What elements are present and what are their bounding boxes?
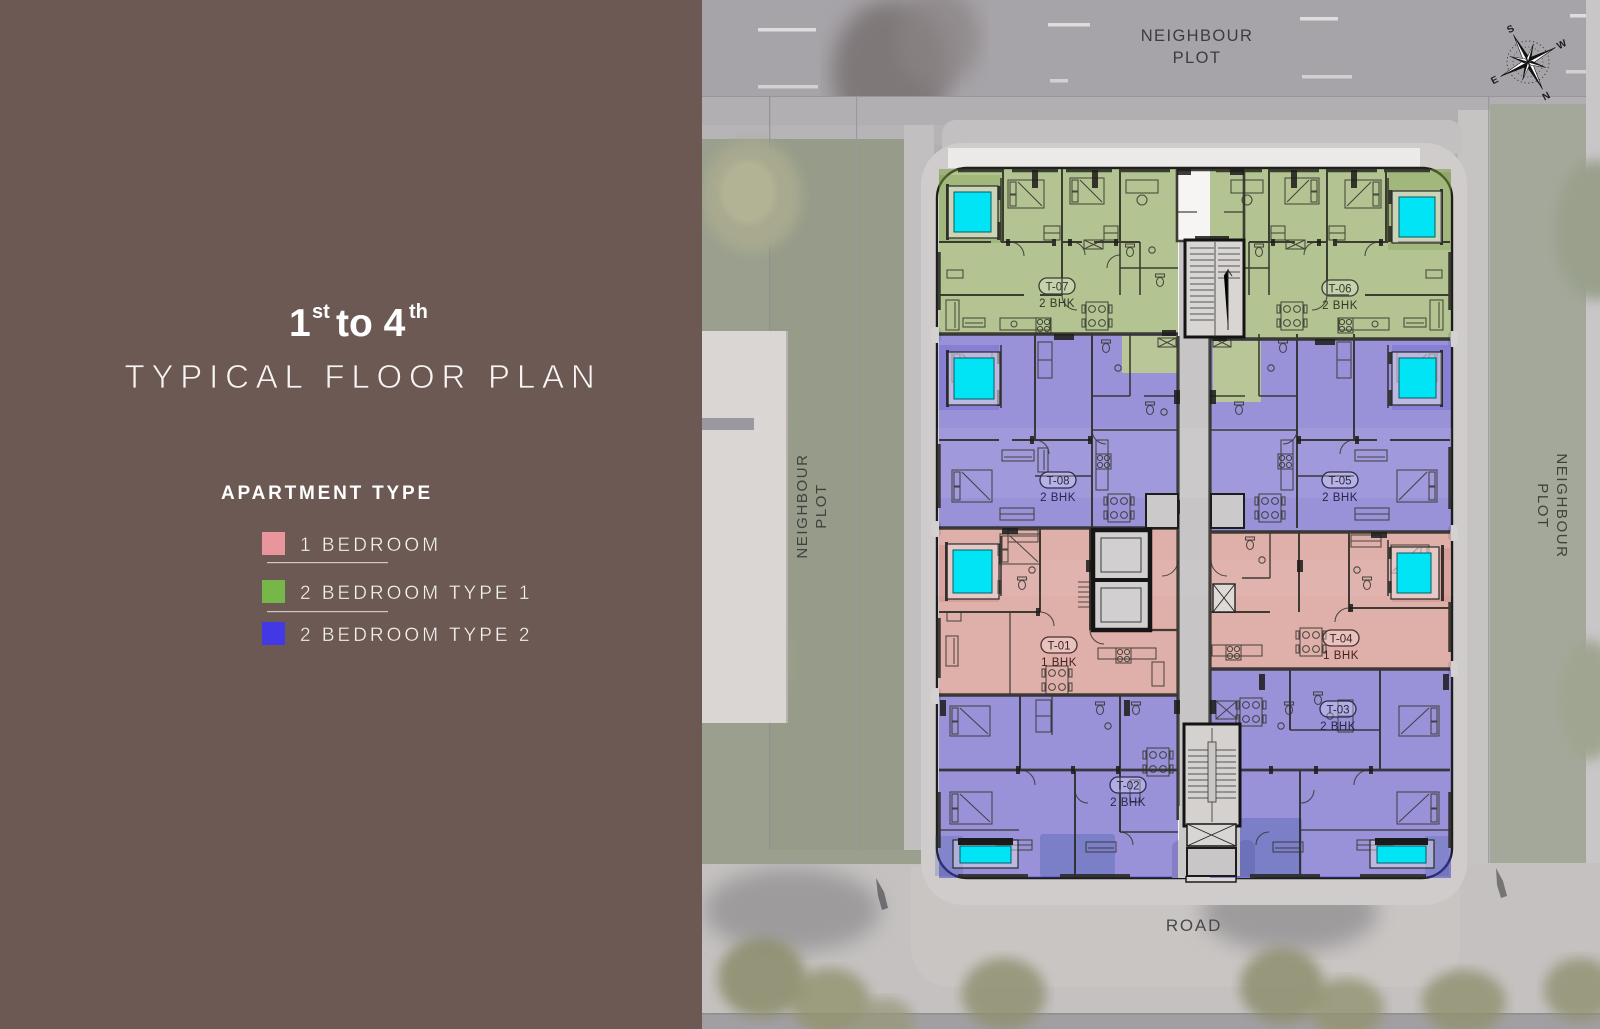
svg-text:NEIGHBOUR: NEIGHBOUR [1553,453,1570,558]
svg-text:1: 1 [289,302,311,345]
svg-text:APARTMENT TYPE: APARTMENT TYPE [221,483,433,504]
svg-text:2 BEDROOM TYPE 1: 2 BEDROOM TYPE 1 [300,583,532,604]
svg-text:PLOT: PLOT [1534,483,1551,529]
svg-text:st: st [312,301,330,323]
svg-text:T-06: T-06 [1328,284,1351,296]
svg-text:T-07: T-07 [1045,282,1068,294]
svg-text:PLOT: PLOT [813,483,830,529]
svg-text:T-03: T-03 [1326,705,1349,717]
svg-text:T-04: T-04 [1329,634,1353,646]
svg-text:T-05: T-05 [1328,476,1351,488]
svg-text:T-01: T-01 [1047,641,1070,653]
svg-text:to 4: to 4 [336,302,406,345]
svg-text:2 BEDROOM TYPE 2: 2 BEDROOM TYPE 2 [300,625,532,646]
svg-text:T-08: T-08 [1046,476,1069,488]
svg-text:TYPICAL FLOOR PLAN: TYPICAL FLOOR PLAN [125,358,602,395]
svg-text:2 BHK: 2 BHK [1320,721,1356,733]
svg-text:1 BHK: 1 BHK [1323,650,1359,662]
svg-text:2 BHK: 2 BHK [1110,797,1146,809]
svg-text:T-02: T-02 [1116,781,1139,793]
svg-text:2 BHK: 2 BHK [1322,492,1358,504]
svg-text:2 BHK: 2 BHK [1322,300,1358,312]
svg-text:th: th [409,301,428,323]
svg-text:2 BHK: 2 BHK [1039,298,1075,310]
svg-text:NEIGHBOUR: NEIGHBOUR [1141,27,1254,45]
svg-text:1 BHK: 1 BHK [1041,657,1077,669]
svg-text:PLOT: PLOT [1173,49,1222,67]
svg-text:NEIGHBOUR: NEIGHBOUR [794,453,811,558]
svg-text:1 BEDROOM: 1 BEDROOM [300,535,441,556]
svg-text:2 BHK: 2 BHK [1040,492,1076,504]
svg-text:ROAD: ROAD [1166,916,1222,935]
